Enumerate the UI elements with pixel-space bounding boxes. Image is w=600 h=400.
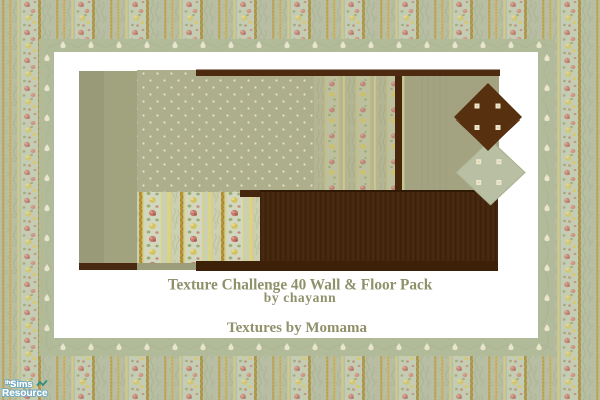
svg-text:Textures by Momama: Textures by Momama xyxy=(227,320,367,336)
svg-text:by chayann: by chayann xyxy=(264,290,336,305)
svg-text:Resource: Resource xyxy=(2,388,48,399)
